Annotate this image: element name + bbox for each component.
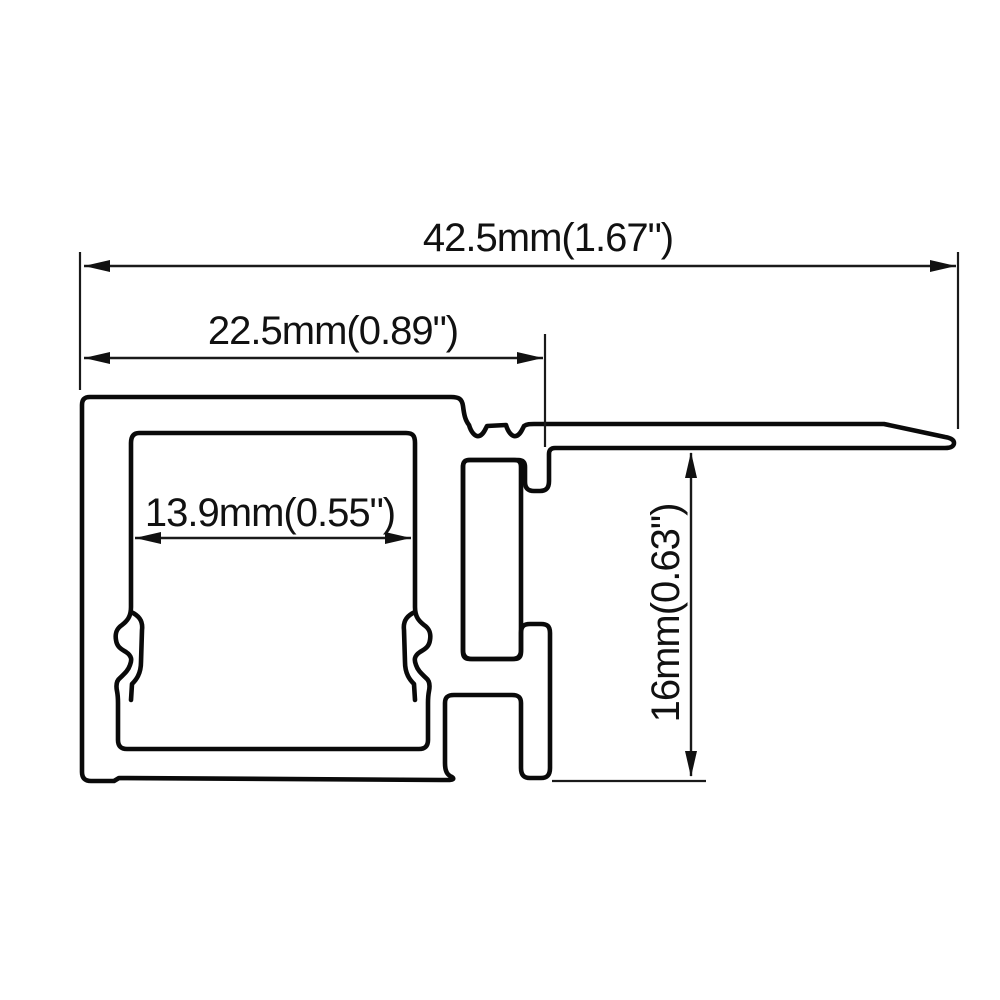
- arrowhead-left-icon: [84, 260, 110, 272]
- dimension-height: 16mm(0.63"): [552, 452, 706, 781]
- arrowhead-left-icon: [84, 352, 110, 364]
- dimension-label-overall-width: 42.5mm(1.67"): [423, 216, 673, 260]
- dimension-inner-channel-width: 13.9mm(0.55"): [135, 491, 411, 544]
- arrowhead-top-icon: [685, 452, 697, 478]
- technical-drawing-canvas: 42.5mm(1.67") 22.5mm(0.89") 13.9mm(0.55"…: [0, 0, 1000, 1000]
- profile-outer-outline: [82, 397, 954, 781]
- right-clip-detail: [404, 612, 415, 700]
- dimension-label-height: 16mm(0.63"): [644, 504, 688, 723]
- arrowhead-right-icon: [930, 260, 956, 272]
- arrowhead-bottom-icon: [685, 751, 697, 777]
- arrowhead-right-icon: [517, 352, 543, 364]
- drawing-page: 42.5mm(1.67") 22.5mm(0.89") 13.9mm(0.55"…: [0, 0, 1000, 1000]
- dimension-label-inner-channel-width: 13.9mm(0.55"): [145, 491, 395, 535]
- profile-cross-section: [82, 397, 954, 781]
- dimension-label-flange-offset-width: 22.5mm(0.89"): [208, 309, 458, 353]
- vertical-slot-outline: [463, 460, 521, 659]
- profile-inner-cavity-outline: [116, 433, 431, 749]
- dimension-flange-offset-width: 22.5mm(0.89"): [84, 309, 545, 447]
- left-clip-detail: [131, 612, 142, 700]
